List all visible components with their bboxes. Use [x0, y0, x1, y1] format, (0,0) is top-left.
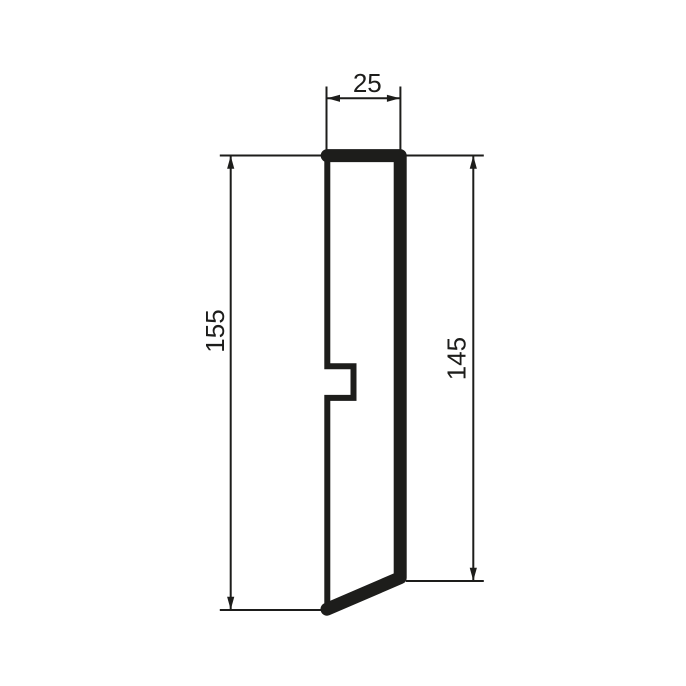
svg-text:155: 155 [200, 309, 230, 352]
svg-text:145: 145 [441, 337, 471, 380]
svg-text:25: 25 [353, 68, 382, 98]
